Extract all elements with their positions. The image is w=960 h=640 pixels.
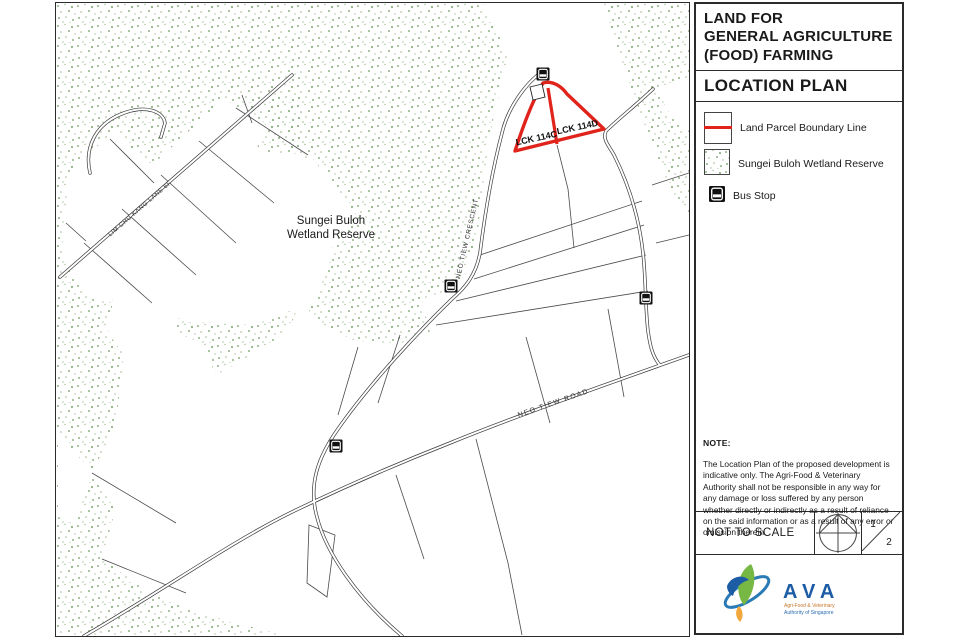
legend-item-wetland: Sungei Buloh Wetland Reserve — [704, 149, 884, 180]
sheet-title: LAND FOR GENERAL AGRICULTURE (FOOD) FARM… — [696, 4, 902, 71]
bus-stop-icon-crescent — [445, 280, 458, 293]
page-number-graphic: 1 2 — [862, 512, 900, 551]
wetland-reserve-stipple-regions — [56, 3, 689, 636]
parcel-label-lck114d: LCK 114D — [556, 118, 600, 137]
logo-subtext-line2: Authority of Singapore — [784, 610, 834, 616]
sliver-parcel — [307, 525, 335, 597]
page-current: 1 — [870, 519, 876, 530]
legend-label-wetland: Sungei Buloh Wetland Reserve — [738, 158, 884, 170]
location-plan-map: LCK 114C LCK 114D Sungei Buloh Wetland R… — [55, 2, 690, 637]
page-total: 2 — [886, 537, 892, 548]
legend-item-boundary: Land Parcel Boundary Line — [704, 112, 867, 144]
legend-label-boundary: Land Parcel Boundary Line — [740, 122, 867, 134]
road-neo-tiew-road — [84, 355, 689, 636]
sheet-title-line1: LAND FOR — [704, 10, 894, 28]
road-label-neo-tiew-road: NEO TIEW ROAD — [517, 388, 590, 419]
wetland-label-line1: Sungei Buloh — [297, 215, 365, 227]
legend-key-bus-stop — [704, 186, 725, 207]
ava-logo: AVA Agri-Food & Veterinary Authority of … — [719, 562, 879, 626]
land-parcel-boundary: LCK 114C LCK 114D — [515, 82, 604, 151]
logo-subtext-line1: Agri-Food & Veterinary — [784, 603, 835, 609]
ava-logo-mark — [721, 564, 773, 622]
agency-logo-block: AVA Agri-Food & Veterinary Authority of … — [696, 554, 902, 633]
legend-key-wetland-pattern — [704, 149, 730, 180]
legend-label-bus-stop: Bus Stop — [733, 190, 776, 202]
logo-text: AVA — [783, 581, 840, 603]
logo-orange-drop — [736, 606, 742, 622]
bus-stop-icon-south — [330, 440, 343, 453]
sheet-title-line3: (FOOD) FARMING — [704, 47, 894, 65]
title-block-panel: LAND FOR GENERAL AGRICULTURE (FOOD) FARM… — [694, 2, 904, 635]
bus-stop-icon-north — [537, 68, 550, 81]
parcel-notch — [530, 84, 545, 100]
section-title: LOCATION PLAN — [696, 71, 902, 102]
sheet-title-line2: GENERAL AGRICULTURE — [704, 28, 894, 46]
legend-and-notes: Land Parcel Boundary Line Sungei Buloh W… — [696, 102, 902, 511]
legend-item-bus-stop: Bus Stop — [704, 186, 776, 207]
legend-key-boundary-line — [704, 112, 732, 144]
bus-stop-icon — [709, 186, 725, 202]
stipple-swatch — [704, 149, 730, 175]
wetland-label-line2: Wetland Reserve — [287, 229, 375, 241]
note-title: NOTE: — [703, 438, 894, 448]
map-canvas: LCK 114C LCK 114D Sungei Buloh Wetland R… — [56, 3, 689, 636]
page-number-cell: 1 2 — [861, 512, 902, 554]
road-surface-neo-tiew-road — [84, 355, 689, 636]
red-boundary-swatch — [704, 126, 732, 129]
bus-stop-icon-east — [640, 292, 653, 305]
